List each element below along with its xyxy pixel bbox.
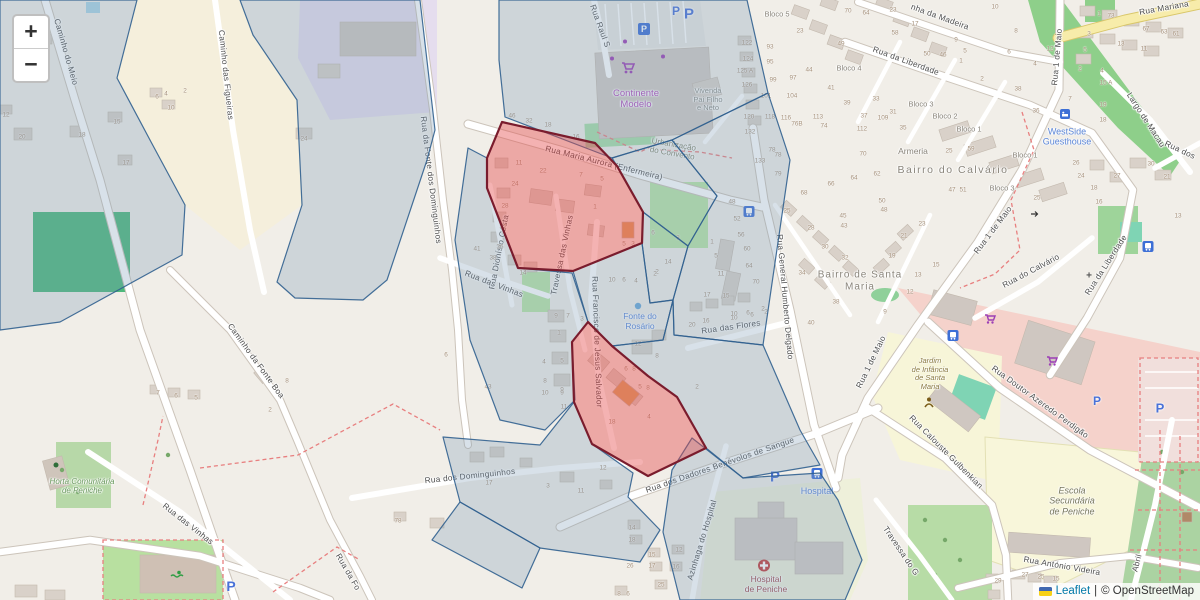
map-canvas[interactable]: P + Caminho do MeioCaminho das Figueiras… <box>0 0 1200 600</box>
zoom-out-button[interactable]: − <box>14 49 48 81</box>
geojson-overlay <box>0 0 1200 600</box>
leaflet-link[interactable]: Leaflet <box>1056 585 1091 597</box>
zoom-control: + − <box>12 14 50 83</box>
zoom-in-button[interactable]: + <box>14 16 48 49</box>
attribution-separator: | <box>1094 585 1097 597</box>
ukraine-flag-icon <box>1039 587 1052 596</box>
osm-link[interactable]: © OpenStreetMap <box>1101 585 1194 597</box>
overlay-cell[interactable] <box>240 0 435 300</box>
attribution-bar: Leaflet | © OpenStreetMap <box>1033 583 1200 600</box>
